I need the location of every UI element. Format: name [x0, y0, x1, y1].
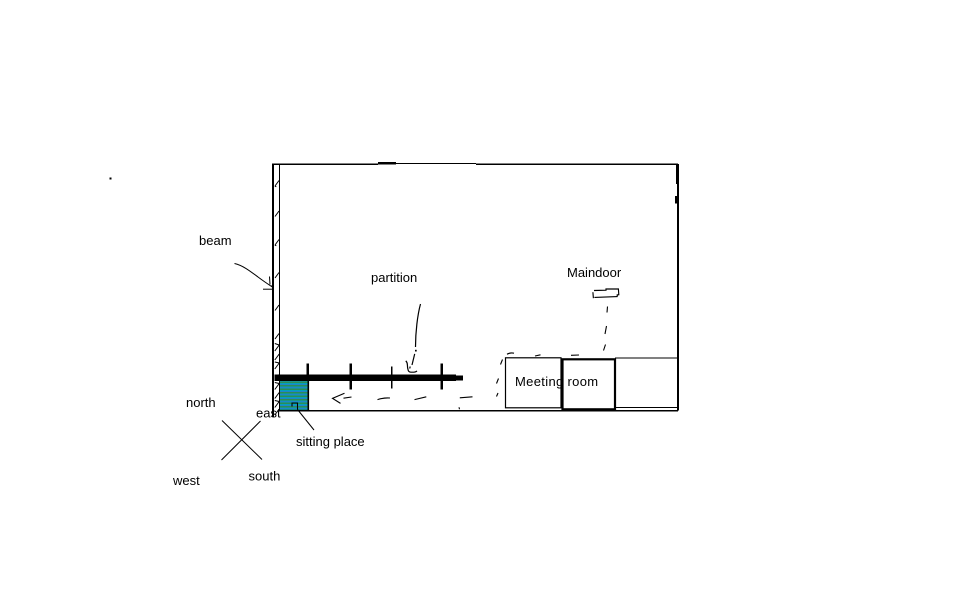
- svg-text:north: north: [186, 395, 216, 410]
- svg-text:west: west: [172, 473, 200, 488]
- svg-text:partition: partition: [371, 270, 417, 285]
- svg-text:south: south: [249, 469, 281, 484]
- svg-text:beam: beam: [199, 233, 232, 248]
- svg-text:Maindoor: Maindoor: [567, 265, 622, 280]
- svg-text:sitting place: sitting place: [296, 434, 365, 449]
- svg-text:Meeting room: Meeting room: [515, 374, 598, 389]
- svg-text:east: east: [256, 406, 281, 421]
